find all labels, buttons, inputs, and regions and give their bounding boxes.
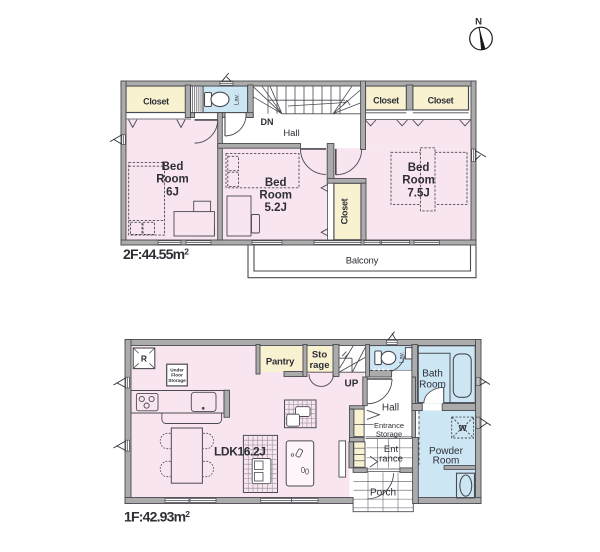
svg-text:Bath: Bath	[422, 369, 443, 380]
svg-text:2F:44.55m2: 2F:44.55m2	[123, 246, 189, 262]
svg-text:Balcony: Balcony	[346, 255, 379, 266]
svg-text:Room: Room	[419, 380, 446, 391]
svg-text:Bed: Bed	[162, 161, 184, 173]
svg-text:Room: Room	[156, 174, 189, 186]
svg-text:Lav.: Lav.	[235, 94, 241, 105]
svg-text:R: R	[141, 354, 147, 364]
svg-text:Sto: Sto	[312, 350, 328, 361]
svg-text:Room: Room	[402, 175, 435, 187]
svg-text:Room: Room	[433, 456, 460, 467]
svg-text:Closet: Closet	[428, 96, 454, 106]
svg-text:DN: DN	[261, 117, 274, 127]
svg-text:Bed: Bed	[408, 162, 430, 174]
svg-text:7.5J: 7.5J	[407, 187, 429, 199]
svg-text:Closet: Closet	[143, 97, 169, 107]
svg-text:Room: Room	[259, 190, 292, 202]
svg-text:Storage: Storage	[376, 429, 402, 438]
svg-text:rance: rance	[379, 454, 403, 465]
svg-text:N: N	[475, 17, 482, 28]
svg-text:LDK16.2J: LDK16.2J	[214, 445, 266, 459]
svg-text:1F:42.93m2: 1F:42.93m2	[124, 509, 190, 525]
svg-text:Lav.: Lav.	[400, 352, 406, 363]
svg-text:Hall: Hall	[283, 128, 299, 139]
svg-text:UP: UP	[345, 378, 359, 389]
svg-text:W: W	[459, 423, 468, 433]
svg-text:Porch: Porch	[370, 488, 396, 499]
svg-text:Bed: Bed	[265, 177, 287, 189]
svg-text:Storage: Storage	[168, 378, 186, 383]
svg-text:Pantry: Pantry	[266, 357, 295, 368]
svg-text:Closet: Closet	[340, 198, 350, 224]
svg-text:Hall: Hall	[382, 403, 399, 414]
svg-text:5.2J: 5.2J	[265, 202, 287, 214]
svg-text:rage: rage	[309, 360, 329, 371]
svg-text:6J: 6J	[166, 186, 179, 198]
svg-text:Closet: Closet	[373, 96, 399, 106]
